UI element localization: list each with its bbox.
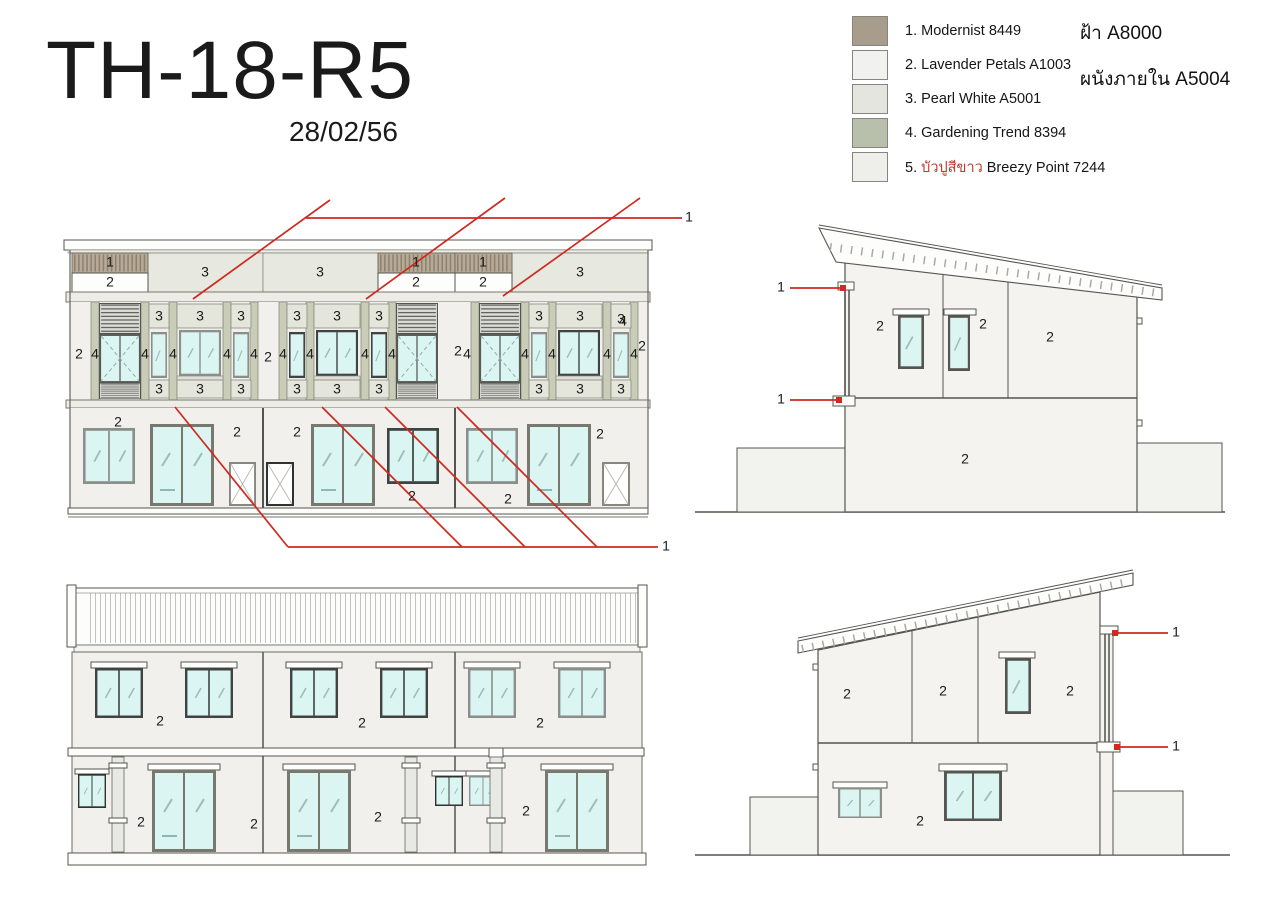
drawing-sheet: TH-18-R5 28/02/56 1. Modernist 8449 2. L… bbox=[0, 0, 1280, 905]
finish-label-3: 3 bbox=[237, 381, 245, 397]
finish-label-4: 4 bbox=[548, 346, 556, 362]
finish-label-2: 2 bbox=[250, 816, 258, 832]
finish-label-3: 3 bbox=[293, 381, 301, 397]
finish-label-2: 2 bbox=[1046, 329, 1054, 345]
finish-label-2: 2 bbox=[1066, 683, 1074, 699]
finish-label-3: 3 bbox=[293, 308, 301, 324]
finish-label-2: 2 bbox=[504, 491, 512, 507]
finish-label-1: 1 bbox=[685, 209, 693, 225]
finish-label-2: 2 bbox=[374, 809, 382, 825]
finish-label-2: 2 bbox=[75, 346, 83, 362]
finish-label-3: 3 bbox=[196, 381, 204, 397]
ground-floor-openings bbox=[84, 426, 629, 506]
finish-label-2: 2 bbox=[358, 715, 366, 731]
finish-label-2: 2 bbox=[479, 274, 487, 290]
finish-label-2: 2 bbox=[939, 683, 947, 699]
finish-label-2: 2 bbox=[536, 715, 544, 731]
elevations-svg: 1233121233333333333333333334444444444444… bbox=[0, 0, 1280, 905]
finish-label-3: 3 bbox=[333, 381, 341, 397]
finish-label-2: 2 bbox=[638, 338, 646, 354]
finish-label-4: 4 bbox=[361, 346, 369, 362]
finish-label-3: 3 bbox=[155, 308, 163, 324]
finish-label-2: 2 bbox=[596, 426, 604, 442]
finish-label-1: 1 bbox=[662, 538, 670, 554]
finish-label-4: 4 bbox=[223, 346, 231, 362]
finish-label-4: 4 bbox=[521, 346, 529, 362]
finish-label-4: 4 bbox=[169, 346, 177, 362]
finish-label-4: 4 bbox=[250, 346, 258, 362]
finish-label-3: 3 bbox=[535, 381, 543, 397]
finish-label-2: 2 bbox=[412, 274, 420, 290]
finish-label-3: 3 bbox=[576, 308, 584, 324]
finish-label-4: 4 bbox=[91, 346, 99, 362]
finish-label-1: 1 bbox=[412, 254, 420, 270]
finish-label-4: 4 bbox=[306, 346, 314, 362]
finish-label-2: 2 bbox=[114, 414, 122, 430]
rear-elevation-drawing: 2222222 bbox=[67, 585, 647, 865]
left-side-elevation-drawing: 222211 bbox=[695, 570, 1230, 855]
finish-label-2: 2 bbox=[454, 343, 462, 359]
finish-label-3: 3 bbox=[576, 381, 584, 397]
finish-label-3: 3 bbox=[333, 308, 341, 324]
finish-label-4: 4 bbox=[141, 346, 149, 362]
finish-label-1: 1 bbox=[479, 254, 487, 270]
finish-label-2: 2 bbox=[876, 318, 884, 334]
finish-label-2: 2 bbox=[979, 316, 987, 332]
finish-label-3: 3 bbox=[237, 308, 245, 324]
right-side-elevation-drawing: 222211 bbox=[695, 225, 1225, 512]
finish-label-4: 4 bbox=[463, 346, 471, 362]
finish-label-4: 4 bbox=[619, 313, 627, 329]
finish-label-3: 3 bbox=[375, 308, 383, 324]
front-elevation-drawing: 1233121233333333333333333334444444444444… bbox=[64, 198, 693, 554]
finish-label-1: 1 bbox=[777, 279, 785, 295]
finish-label-2: 2 bbox=[522, 803, 530, 819]
paint-leader-lines-left bbox=[1112, 630, 1168, 750]
elevation-drawings: 1233121233333333333333333334444444444444… bbox=[0, 0, 1280, 905]
finish-label-2: 2 bbox=[961, 451, 969, 467]
finish-label-1: 1 bbox=[1172, 738, 1180, 754]
finish-label-4: 4 bbox=[630, 346, 638, 362]
finish-label-3: 3 bbox=[201, 264, 209, 280]
finish-label-3: 3 bbox=[316, 264, 324, 280]
finish-label-4: 4 bbox=[388, 346, 396, 362]
finish-label-3: 3 bbox=[576, 264, 584, 280]
finish-label-4: 4 bbox=[279, 346, 287, 362]
finish-label-1: 1 bbox=[106, 254, 114, 270]
finish-label-2: 2 bbox=[233, 424, 241, 440]
finish-label-3: 3 bbox=[155, 381, 163, 397]
finish-label-2: 2 bbox=[106, 274, 114, 290]
finish-label-3: 3 bbox=[617, 381, 625, 397]
finish-label-2: 2 bbox=[137, 814, 145, 830]
finish-label-4: 4 bbox=[603, 346, 611, 362]
finish-label-2: 2 bbox=[264, 349, 272, 365]
finish-label-3: 3 bbox=[375, 381, 383, 397]
paint-leader-lines-right bbox=[790, 285, 846, 403]
finish-label-3: 3 bbox=[535, 308, 543, 324]
finish-label-2: 2 bbox=[293, 424, 301, 440]
finish-label-1: 1 bbox=[777, 391, 785, 407]
finish-label-1: 1 bbox=[1172, 624, 1180, 640]
finish-label-2: 2 bbox=[156, 713, 164, 729]
finish-label-3: 3 bbox=[196, 308, 204, 324]
finish-label-2: 2 bbox=[843, 686, 851, 702]
finish-label-2: 2 bbox=[916, 813, 924, 829]
finish-label-2: 2 bbox=[408, 488, 416, 504]
